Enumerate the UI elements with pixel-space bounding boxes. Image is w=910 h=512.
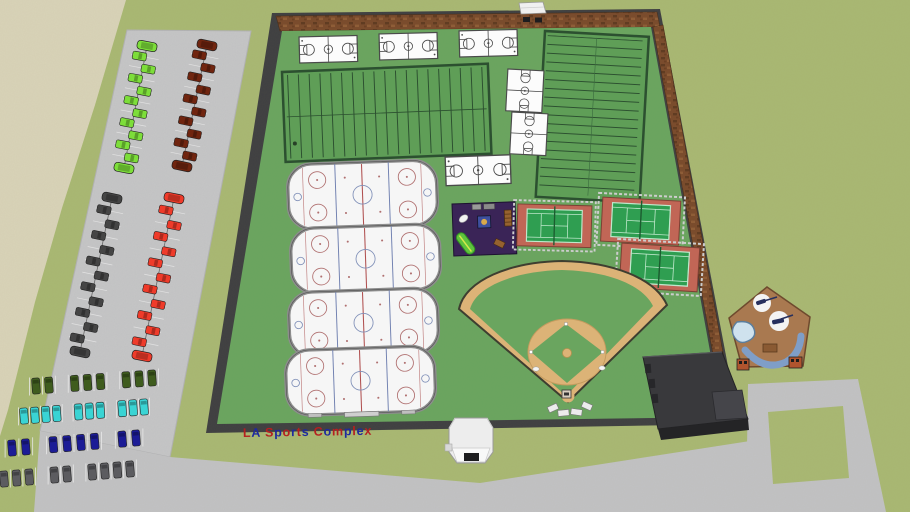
first-base	[601, 351, 604, 354]
pitchers-mound	[563, 349, 572, 358]
parked-car	[12, 470, 21, 487]
hockey-rink	[290, 224, 441, 298]
parked-car	[129, 400, 138, 417]
climber-icon	[484, 204, 495, 210]
parked-car	[118, 431, 127, 448]
parked-car	[90, 433, 99, 450]
parked-car	[21, 439, 30, 456]
parked-car	[25, 469, 34, 486]
parked-car	[125, 461, 134, 478]
hockey-rink	[285, 346, 436, 420]
parked-car	[122, 372, 131, 389]
climber-icon	[472, 204, 481, 210]
parked-car	[41, 406, 50, 423]
parked-car	[83, 374, 92, 391]
brick-pillar	[789, 357, 802, 368]
parked-car	[31, 378, 40, 395]
parked-car	[135, 371, 144, 388]
parked-car	[44, 377, 53, 394]
pool-icon	[732, 322, 754, 343]
third-base	[530, 351, 533, 354]
football-field-vertical	[536, 31, 649, 203]
bleacher-icon	[571, 408, 583, 415]
parked-car	[62, 435, 71, 452]
basketball-court	[459, 29, 518, 57]
parked-car	[76, 434, 85, 451]
on-deck-circle	[599, 366, 605, 370]
parked-car	[147, 370, 156, 387]
scene: LA Sports Complex	[0, 0, 910, 512]
hockey-rink	[287, 160, 438, 234]
basketball-court	[506, 69, 544, 113]
parked-car	[131, 430, 140, 447]
parked-car	[113, 462, 122, 479]
parked-car	[100, 463, 109, 480]
table-icon	[763, 344, 777, 352]
parked-car	[118, 400, 127, 417]
wall-box-icon	[523, 17, 530, 22]
parked-car	[96, 402, 105, 419]
parked-car	[52, 405, 61, 422]
parked-car	[62, 466, 71, 483]
basketball-court	[445, 155, 511, 186]
parked-car	[85, 403, 94, 420]
gatehouse	[445, 418, 493, 463]
basketball-court	[299, 35, 358, 63]
tennis-court	[513, 200, 596, 252]
parked-car	[139, 399, 148, 416]
parked-car	[30, 407, 39, 424]
brick-pillar	[737, 359, 749, 370]
parked-car	[88, 464, 97, 481]
playground	[452, 202, 517, 257]
football-field-horizontal	[282, 64, 491, 162]
bleacher-icon	[558, 409, 570, 416]
parked-car	[0, 471, 9, 488]
basketball-court	[379, 32, 438, 60]
sign-text: LA Sports Complex	[243, 424, 372, 440]
wall-box-icon	[535, 18, 542, 23]
gate-door	[464, 453, 479, 461]
parked-car	[49, 436, 58, 453]
basketball-court	[510, 112, 548, 156]
second-base	[565, 323, 568, 326]
parked-car	[96, 373, 105, 390]
parked-car	[70, 375, 79, 392]
on-deck-circle	[533, 367, 539, 371]
parked-car	[50, 467, 59, 484]
parked-car	[7, 440, 16, 457]
parked-car	[74, 404, 83, 421]
parked-car	[19, 408, 28, 425]
scene-canvas: LA Sports Complex	[0, 0, 910, 512]
